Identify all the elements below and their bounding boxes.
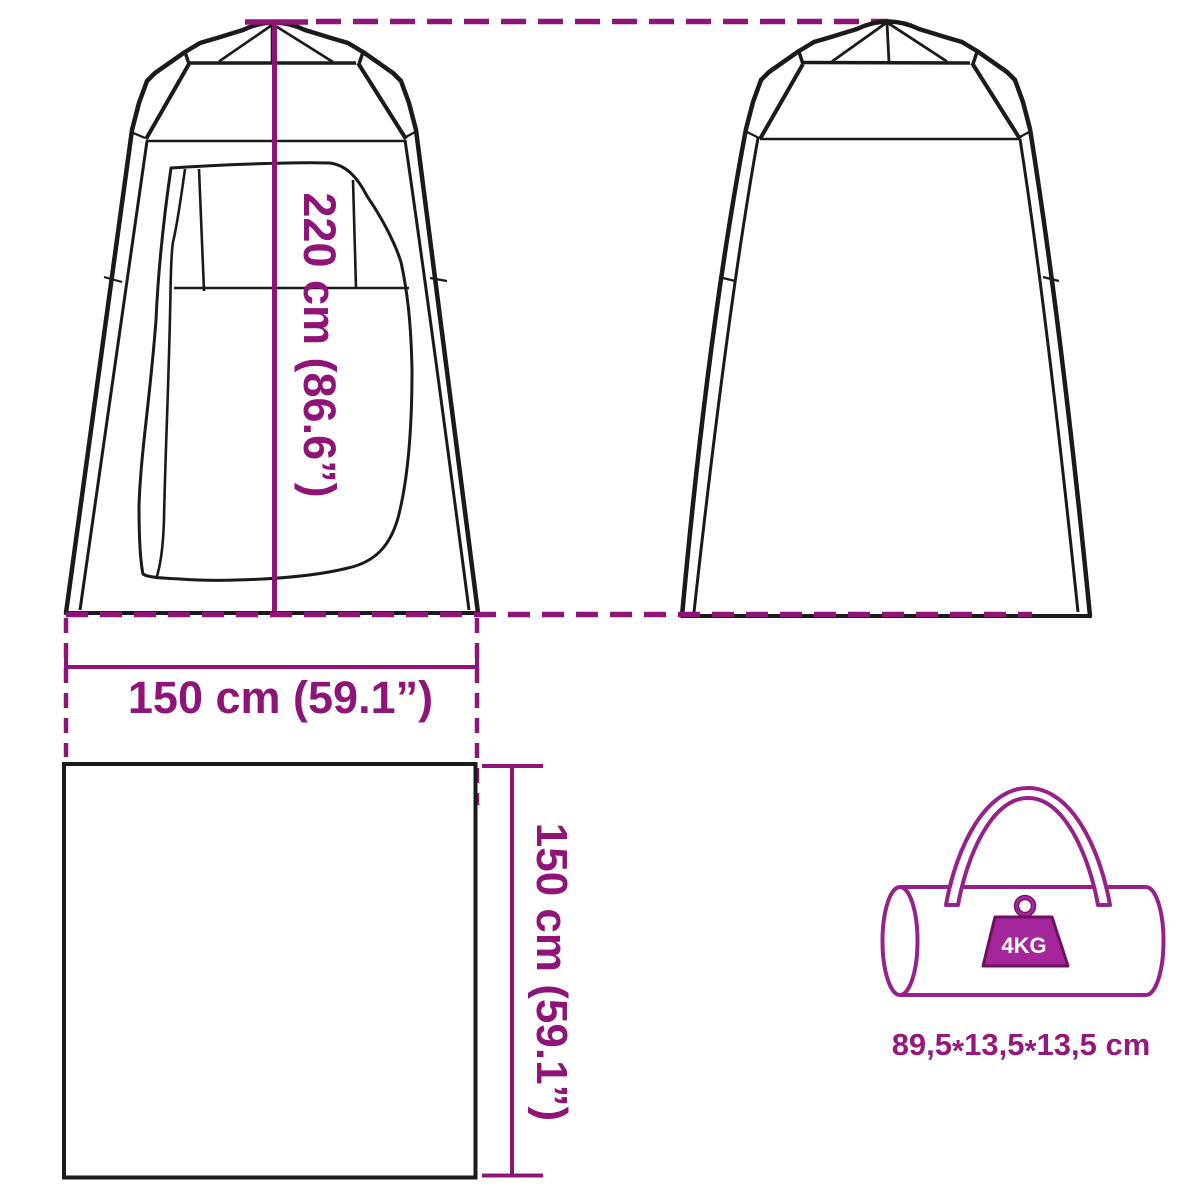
svg-text:150 cm (59.1”): 150 cm (59.1”)	[527, 823, 576, 1121]
svg-text:4KG: 4KG	[1001, 933, 1046, 958]
svg-text:89,5*13,5*13,5 cm: 89,5*13,5*13,5 cm	[892, 1027, 1151, 1068]
svg-text:150 cm (59.1”): 150 cm (59.1”)	[128, 672, 433, 723]
svg-text:220 cm (86.6”): 220 cm (86.6”)	[294, 192, 345, 497]
